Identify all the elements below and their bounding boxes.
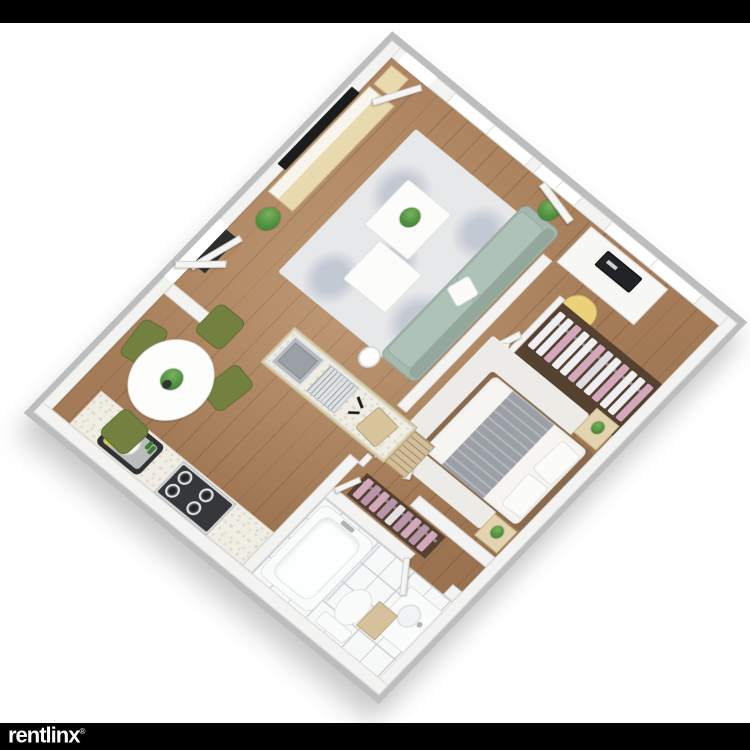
rentlinx-logo: rentlinx® <box>8 720 84 747</box>
utensil-2 <box>348 411 360 414</box>
registered-trademark-symbol: ® <box>79 727 84 736</box>
top-black-bar <box>0 0 750 23</box>
apartment-3d-scene <box>33 40 738 695</box>
floor-plan-image: rentlinx® <box>0 0 750 750</box>
entry-door-leaf-2 <box>174 261 226 269</box>
bottom-black-bar <box>0 723 750 750</box>
rentlinx-logo-text: rentlinx <box>8 722 79 747</box>
